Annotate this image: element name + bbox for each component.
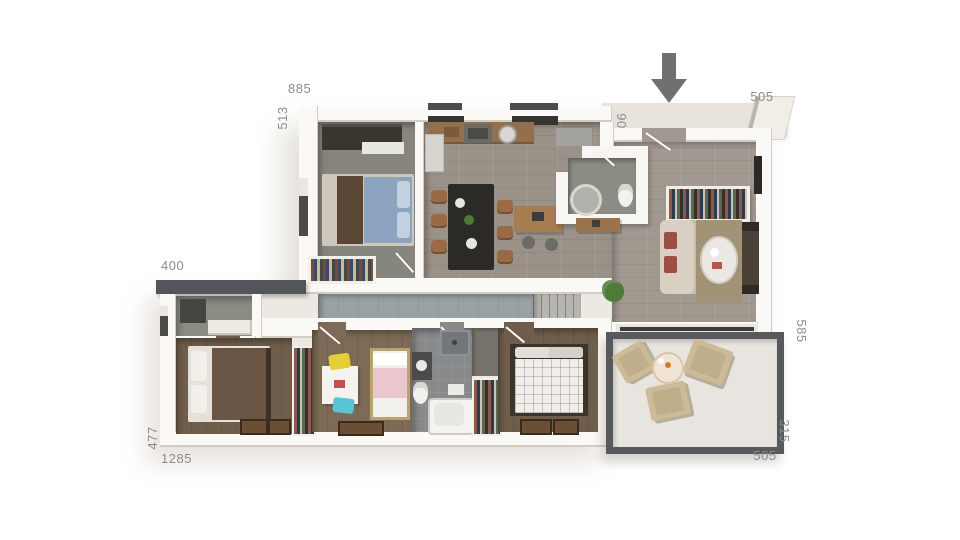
coffee-table [700,236,738,284]
sliding-door-glass [620,327,754,331]
bedroom2-footboard [266,348,271,420]
dining-chair-5 [497,226,513,240]
master-mat-1 [520,419,552,435]
island-plate-1 [455,198,465,208]
dimension-entry-width: 505 [740,90,784,104]
dimension-entry-depth: 90 [614,99,628,143]
bedroom2-mat-2 [268,419,291,435]
bedroom1-window [299,178,308,236]
closet-strip-b-upper [472,328,498,376]
island-plant [464,215,474,225]
desk-stool-1 [522,236,535,249]
bathtub-inner [434,403,464,426]
entrance-arrow-head [651,79,687,103]
desk-stool-2 [545,238,558,251]
kids-mat [338,421,384,436]
dimension-total-width: 1285 [161,452,205,466]
dimension-right-height: 585 [794,309,808,353]
kitchen-fridge [425,134,444,172]
bedroom1-dresser [362,142,404,154]
tv-console [742,222,759,294]
coffee-table-book [712,262,722,269]
dining-chair-4 [497,200,513,214]
kids-bed-blanket-pink [373,368,407,398]
terrace-table [652,352,684,384]
kitchen-window-strip-right [510,103,558,110]
dimension-top-width: 885 [288,82,332,96]
coffee-table-tray [710,248,719,257]
dining-chair-6 [497,250,513,264]
dining-chair-3 [431,240,447,254]
dining-chair-1 [431,190,447,204]
kitchen-sink [498,125,517,144]
kitchen-stove [464,124,492,143]
kids-desk-toy [334,380,345,388]
entrance-arrow-icon [651,53,687,103]
bath-toilet [413,382,428,404]
sofa-cushion-1 [664,232,677,249]
wall-bedroom1-kitchen [415,122,424,280]
bedroom2-mat-1 [240,419,268,435]
bath-mat [448,384,464,395]
bedroom2-pillow-1 [191,351,207,381]
wc-shower-basin [570,184,602,216]
master-mat-2 [553,419,579,435]
bath-shower-drain [452,340,457,345]
entrance-arrow-shaft [662,53,676,79]
dressing-dresser [208,320,252,335]
bedroom1-pillow-1 [397,181,410,208]
dimension-terrace-height: 315 [777,409,791,453]
dimension-annex-width: 400 [161,259,205,273]
hall-bench-item [592,220,600,227]
wall-tv-panel [754,156,762,194]
kitchen-island [448,184,494,270]
bedroom1-pillow-2 [397,212,410,238]
bedroom2-duvet [212,348,268,420]
bedroom1-throw-blanket [337,176,363,244]
kids-chair-teal [332,397,354,414]
kitchen-window-strip-left [428,103,462,110]
kids-chair-yellow [328,353,351,371]
bed-master-duvet [515,359,583,413]
flat-roof-bar [156,280,306,294]
dimension-upper-left-height: 513 [276,96,290,140]
dressing-wardrobe [180,299,206,323]
living-wardrobe [666,186,750,222]
dimension-terrace-width: 505 [743,449,787,463]
bed-master-pillows [515,347,583,358]
bedroom2-pillow-2 [191,385,207,413]
sofa-cushion-2 [664,256,677,273]
dimension-lower-left-height: 477 [146,416,160,460]
dining-chair-2 [431,214,447,228]
terrace-table-bowl [665,362,671,368]
hall-plant [602,280,624,302]
desk-laptop [532,212,544,221]
kitchen-cutting-board [444,127,459,137]
terrace-table-cup [658,358,664,364]
kids-bed-pillow [373,353,407,365]
floorplan-canvas: 885 513 505 90 400 585 477 1285 315 505 [0,0,960,540]
corridor-floor [318,292,533,320]
bath-sink [416,360,427,371]
island-plate-2 [466,238,477,249]
wc-toilet [618,184,633,207]
lower-window [160,306,168,336]
bedroom1-bookshelf [308,256,376,284]
